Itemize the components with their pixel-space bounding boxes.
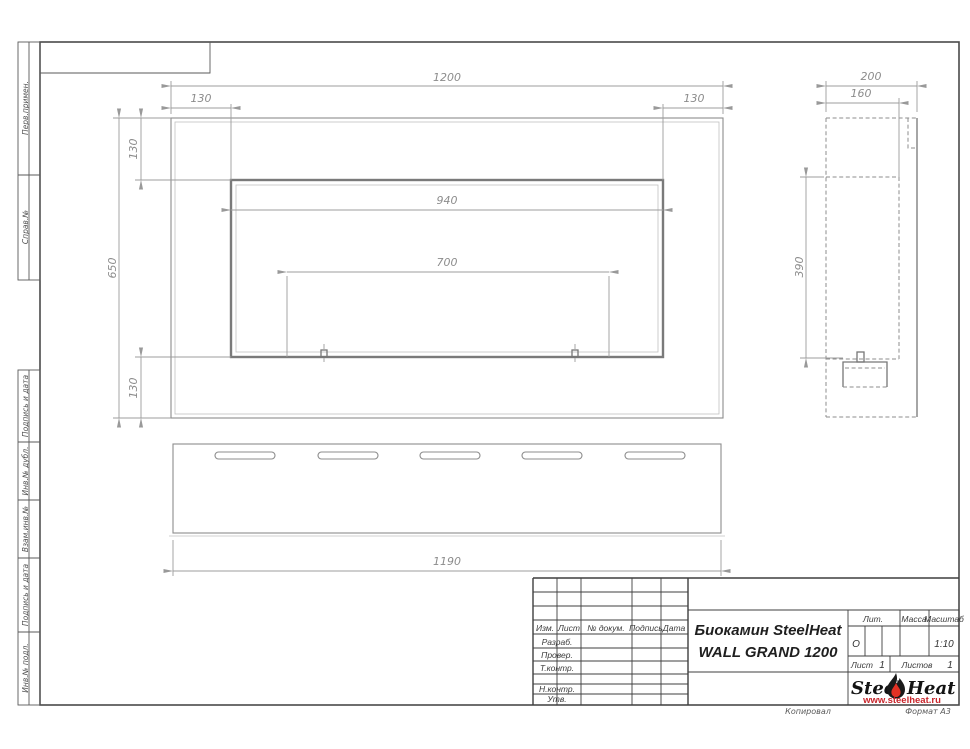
dimension-700: 700 <box>437 256 458 269</box>
sheets-label: Листов <box>901 660 934 670</box>
row-nkontr: Н.контр. <box>539 684 575 694</box>
row-razrab: Разраб. <box>542 637 573 647</box>
frame-label: Взам.инв.№ <box>21 506 30 552</box>
drawing-sheet: Перв.примен. Справ.№ Подпись и дата Инв.… <box>0 0 970 749</box>
frame-left-upper-boxes: Перв.примен. Справ.№ <box>18 42 40 280</box>
header-doc: № докум. <box>587 623 624 633</box>
burner-clip <box>572 344 578 362</box>
mount-bracket <box>908 118 917 148</box>
dimension-390: 390 <box>793 257 806 278</box>
burner-block <box>843 352 887 387</box>
dimension-130-right: 130 <box>684 92 705 105</box>
burner-clip <box>321 344 327 362</box>
dimension-1200: 1200 <box>433 71 461 84</box>
lit-value: О <box>852 639 860 650</box>
revision-table: Изм. Лист № докум. Подпись Дата Разраб. … <box>533 578 688 705</box>
header-izm: Изм. <box>536 623 554 633</box>
dimension-1190: 1190 <box>433 555 461 568</box>
frame-label: Справ.№ <box>21 210 30 244</box>
row-prover: Провер. <box>541 650 573 660</box>
row-utv: Утв. <box>546 694 566 704</box>
scale-header: Масштаб <box>924 614 965 624</box>
company-logo: Steel Heat www.steelheat.ru <box>851 673 956 706</box>
bottom-view: 1190 <box>169 444 725 576</box>
copied-label: Копировал <box>785 707 831 716</box>
technical-drawing: Перв.примен. Справ.№ Подпись и дата Инв.… <box>0 0 970 749</box>
header-sign: Подпись <box>629 623 663 633</box>
side-view-dimensions: 200 160 390 <box>793 70 917 358</box>
title-block: Изм. Лист № докум. Подпись Дата Разраб. … <box>533 578 965 706</box>
dimension-650: 650 <box>106 258 119 279</box>
vent-slots <box>215 452 685 459</box>
dimension-130-left: 130 <box>191 92 212 105</box>
frame-label: Перв.примен. <box>21 81 30 135</box>
corner-designation-box <box>40 42 210 73</box>
title-line-1: Биокамин SteelHeat <box>695 622 843 639</box>
frame-label: Подпись и дата <box>21 564 30 627</box>
dimension-130-top: 130 <box>127 139 140 160</box>
row-tkontr: Т.контр. <box>540 663 574 673</box>
sheets-value: 1 <box>947 660 953 671</box>
title-line-2: WALL GRAND 1200 <box>699 644 839 661</box>
dimension-940: 940 <box>437 194 458 207</box>
frame-label: Инв.№ подл. <box>21 643 30 692</box>
frame-label: Подпись и дата <box>21 375 30 438</box>
logo-url: www.steelheat.ru <box>862 695 941 706</box>
header-list: Лист <box>557 623 580 633</box>
header-date: Дата <box>662 623 686 633</box>
frame-left-lower-boxes: Подпись и дата Инв.№ дубл. Взам.инв.№ По… <box>18 370 40 705</box>
footer-notes: Копировал Формат А3 <box>785 707 951 716</box>
sheet-label: Лист <box>850 660 873 670</box>
dimension-200: 200 <box>861 70 882 83</box>
mass-header: Масса <box>901 614 926 624</box>
dimension-160: 160 <box>851 87 872 100</box>
sheet-frame: Перв.примен. Справ.№ Подпись и дата Инв.… <box>18 42 959 705</box>
frame-label: Инв.№ дубл. <box>21 447 30 496</box>
dimension-130-bottom: 130 <box>127 378 140 399</box>
scale-value: 1:10 <box>934 639 954 650</box>
sheet-value: 1 <box>879 660 885 671</box>
lit-header: Лит. <box>862 614 883 624</box>
format-label: Формат А3 <box>905 707 951 716</box>
side-view <box>826 118 917 417</box>
front-view-dimensions: 1200 130 130 650 130 130 940 700 <box>106 71 723 418</box>
